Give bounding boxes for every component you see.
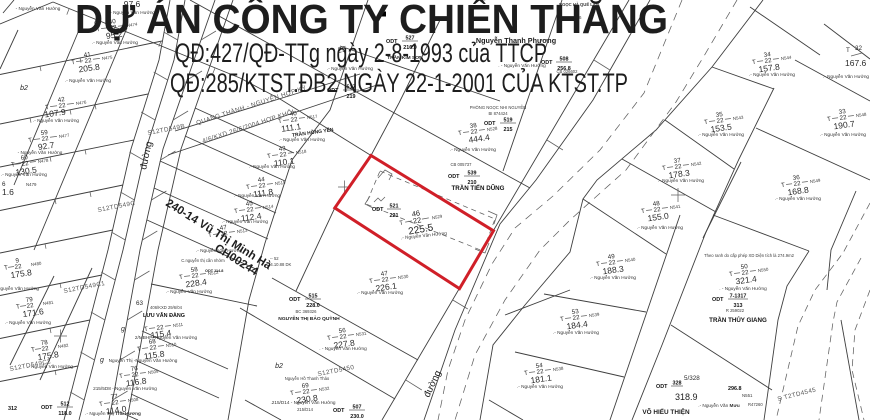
svg-text:539: 539 — [468, 171, 477, 177]
svg-text:215: 215 — [504, 127, 513, 133]
svg-text:ODT: ODT — [484, 121, 496, 127]
svg-text:230.0: 230.0 — [350, 414, 364, 420]
svg-text:296.8: 296.8 — [728, 386, 742, 392]
svg-text:215/5D8 - Nguyễn Văn Hưởng: 215/5D8 - Nguyễn Văn Hưởng — [93, 385, 157, 391]
svg-text:. - Nguyễn Văn Hưởng: . - Nguyễn Văn Hưởng — [319, 345, 367, 351]
svg-text:46: 46 — [411, 208, 421, 218]
svg-text:312: 312 — [8, 406, 17, 412]
svg-text:TRẦN THỦY GIANG: TRẦN THỦY GIANG — [709, 317, 767, 324]
svg-text:.- Nguyễn Văn Hưởng: .- Nguyễn Văn Hưởng — [590, 274, 636, 280]
svg-text:. - Nguyễn Văn Hưởng: . - Nguyễn Văn Hưởng — [719, 285, 767, 291]
svg-text:.- Nguyễn Văn Hưởng: .- Nguyễn Văn Hưởng — [820, 131, 866, 137]
svg-text:NGUYỄN THỊ BẢO QUỲNH: NGUYỄN THỊ BẢO QUỲNH — [278, 315, 340, 322]
svg-text:.- Nguyễn Văn Hưởng: .- Nguyễn Văn Hưởng — [234, 192, 280, 198]
svg-text:.- Nguyễn Văn Hưởng: .- Nguyễn Văn Hưởng — [5, 319, 51, 325]
svg-text:PHÒNG NGỌC NHI NGUYỄN: PHÒNG NGỌC NHI NGUYỄN — [470, 105, 527, 110]
svg-text:.- Nguyễn Thị Thu Hương: .- Nguyễn Thị Thu Hương — [85, 410, 141, 416]
svg-text:.- Nguyễn Văn Hưởng: .- Nguyễn Văn Hưởng — [698, 131, 744, 137]
svg-text:.- Nguyễn Văn Hưởng: .- Nguyễn Văn Hưởng — [0, 285, 39, 291]
svg-text:515: 515 — [309, 294, 318, 300]
svg-text:g: g — [121, 326, 125, 333]
svg-text:.- Nguyễn Văn Hưởng: .- Nguyễn Văn Hưởng — [1, 171, 47, 177]
svg-text:519: 519 — [504, 118, 513, 124]
svg-text:32: 32 — [855, 45, 863, 52]
svg-text:521: 521 — [390, 204, 399, 210]
svg-text:.- Nguyễn Văn Hưởng: .- Nguyễn Văn Hưởng — [249, 163, 295, 169]
svg-text:N479: N479 — [26, 182, 37, 187]
svg-text:ODT: ODT — [656, 384, 668, 390]
svg-text:.- Nguyễn Văn Hưởng: .- Nguyễn Văn Hưởng — [775, 195, 821, 201]
svg-text:5/328: 5/328 — [684, 375, 700, 382]
svg-text:167.6: 167.6 — [845, 58, 867, 68]
svg-text:BI 874424: BI 874424 — [488, 111, 508, 116]
svg-text:.- Nguyễn Văn Hưởng: .- Nguyễn Văn Hưởng — [637, 224, 683, 230]
svg-text:.- Nguyễn Văn Hưởng: .- Nguyễn Văn Hưởng — [823, 73, 869, 79]
svg-text:N551: N551 — [742, 393, 753, 398]
svg-text:CB 005737: CB 005737 — [451, 162, 473, 167]
svg-text:215/D14: 215/D14 — [297, 407, 314, 412]
svg-text:LƯU VĂN ĐÀNG: LƯU VĂN ĐÀNG — [143, 312, 185, 319]
svg-text:T: T — [846, 47, 850, 54]
svg-text:BC 369326: BC 369326 — [296, 309, 318, 314]
svg-text:DỰ ÁN CÔNG TY CHIẾN THẮNG: DỰ ÁN CÔNG TY CHIẾN THẮNG — [75, 0, 668, 42]
svg-text:.- Nguyễn Văn Hưởng: .- Nguyễn Văn Hưởng — [357, 289, 403, 295]
svg-text:.- Nguyễn Văn Hưởng: .- Nguyễn Văn Hưởng — [222, 218, 268, 224]
svg-text:ODT: ODT — [333, 408, 345, 414]
svg-text:g: g — [100, 357, 104, 364]
svg-text:2/MBHP -Nguyễn Văn Hưởng: 2/MBHP -Nguyễn Văn Hưởng — [135, 334, 198, 340]
svg-text:.- Nguyễn Văn Hưởng: .- Nguyễn Văn Hưởng — [450, 146, 496, 152]
svg-text:.- Nguyễn Văn Hưởng: .- Nguyễn Văn Hưởng — [33, 117, 79, 123]
svg-text:ODT: ODT — [448, 174, 460, 180]
svg-text:ODT: ODT — [372, 207, 384, 213]
svg-text:Nguyễn Thị -Nguyễn Văn Hưởng: Nguyễn Thị -Nguyễn Văn Hưởng — [109, 357, 178, 363]
svg-text:ODT: ODT — [289, 297, 301, 303]
svg-text:QĐ:285/KTST.ĐB2 NGÀY 22-1-2001: QĐ:285/KTST.ĐB2 NGÀY 22-1-2001 CỦA KTST.… — [170, 66, 628, 98]
svg-text:b2: b2 — [20, 85, 28, 92]
svg-text:ODT: ODT — [41, 405, 53, 411]
svg-text:406/KXD 29/6/04: 406/KXD 29/6/04 — [150, 305, 183, 310]
svg-text:TRẦN TIẾN DŨNG: TRẦN TIẾN DŨNG — [452, 185, 505, 192]
svg-text:63: 63 — [136, 300, 144, 307]
svg-text:.- Nguyễn Văn Hưởng: .- Nguyễn Văn Hưởng — [65, 77, 111, 83]
svg-text:318.9: 318.9 — [675, 392, 698, 402]
svg-text:118.0: 118.0 — [58, 411, 71, 417]
svg-text:- Nguyễn Văn Hưởng: - Nguyễn Văn Hưởng — [16, 5, 61, 11]
svg-text:.- Nguyễn Văn Mưu: .- Nguyễn Văn Mưu — [698, 402, 740, 408]
svg-text:R47260: R47260 — [748, 402, 763, 407]
svg-text:.- Nguyễn Văn Hưởng: .- Nguyễn Văn Hưởng — [166, 288, 212, 294]
svg-text:.- Nguyễn Văn Hưởng: .- Nguyễn Văn Hưởng — [658, 177, 704, 183]
svg-text:221: 221 — [390, 213, 399, 219]
svg-text:C.nguyễn thị cần nhớm: C.nguyễn thị cần nhớm — [181, 258, 225, 263]
svg-text:.- Nguyễn Văn Hưởng: .- Nguyễn Văn Hưởng — [279, 136, 325, 142]
svg-text:b2: b2 — [275, 363, 283, 370]
svg-text:R 259022: R 259022 — [726, 308, 745, 313]
svg-text:328: 328 — [673, 381, 682, 387]
svg-text:.- Nguyễn Văn Hưởng: .- Nguyễn Văn Hưởng — [553, 329, 599, 335]
svg-text:.- Nguyễn Văn Hưởng: .- Nguyễn Văn Hưởng — [517, 383, 563, 389]
svg-text:.- Nguyễn Văn Hưởng: .- Nguyễn Văn Hưởng — [749, 71, 795, 77]
svg-text:512: 512 — [61, 402, 70, 408]
svg-text:1.6: 1.6 — [2, 187, 14, 197]
svg-text:.215/D14 - Nguyễn Văn Hưởng: .215/D14 - Nguyễn Văn Hưởng — [270, 399, 335, 405]
svg-text:7-1317: 7-1317 — [730, 294, 747, 300]
svg-text:508: 508 — [560, 57, 569, 63]
svg-text:Theo ranh do cấp phép XD Diện: Theo ranh do cấp phép XD Diện tích là 27… — [704, 253, 795, 258]
svg-text:QĐ:427/QĐ-TTg ngày 2-8-1993 củ: QĐ:427/QĐ-TTg ngày 2-8-1993 của TTCP — [175, 38, 547, 68]
svg-text:ODT: ODT — [712, 297, 724, 303]
svg-text:507: 507 — [353, 405, 362, 411]
